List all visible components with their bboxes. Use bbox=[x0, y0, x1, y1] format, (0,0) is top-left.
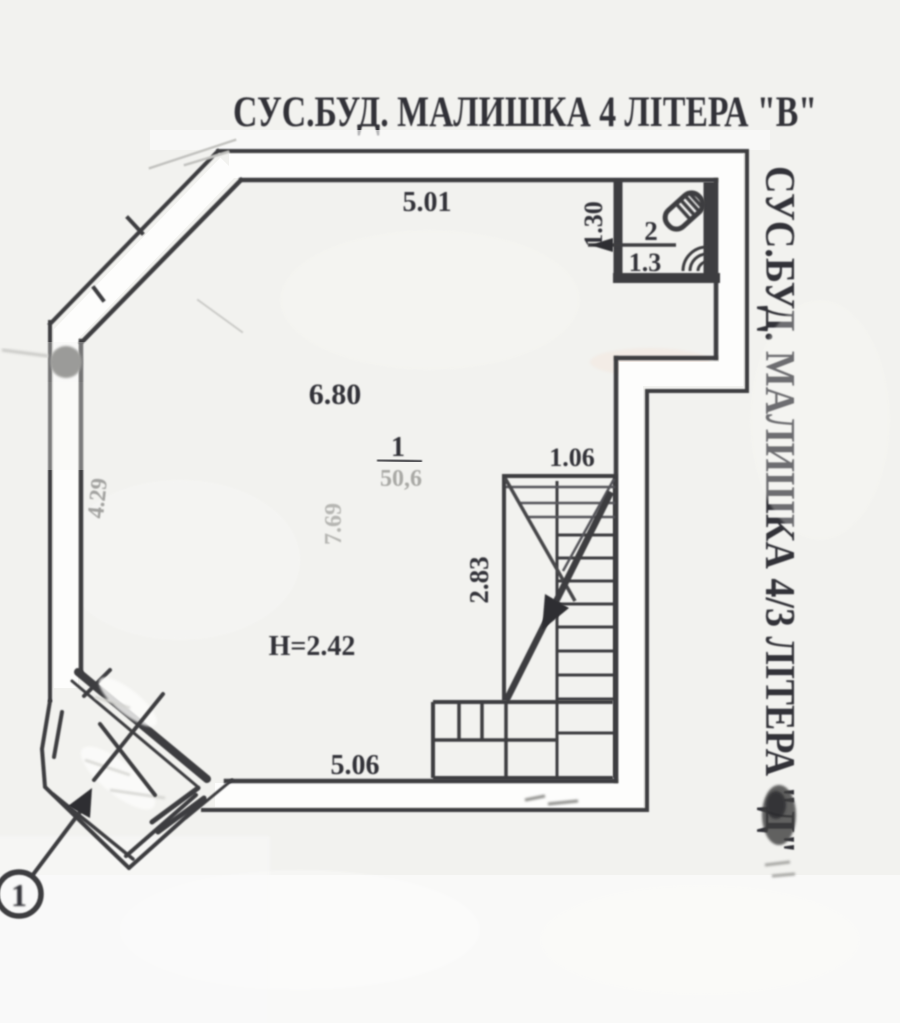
svg-text:50,6: 50,6 bbox=[380, 466, 422, 492]
svg-text:СУС.БУД. МАЛИШКА 4 ЛІТЕРА "В": СУС.БУД. МАЛИШКА 4 ЛІТЕРА "В" bbox=[233, 89, 817, 136]
svg-text:H=2.42: H=2.42 bbox=[269, 631, 356, 662]
svg-text:4.29: 4.29 bbox=[83, 477, 112, 520]
svg-text:1.3: 1.3 bbox=[629, 248, 662, 277]
svg-text:2: 2 bbox=[644, 216, 658, 246]
svg-text:1: 1 bbox=[391, 432, 405, 463]
svg-text:2.83: 2.83 bbox=[464, 556, 494, 603]
svg-text:5.06: 5.06 bbox=[331, 750, 380, 781]
svg-text:6.80: 6.80 bbox=[309, 378, 362, 411]
svg-text:1.06: 1.06 bbox=[549, 443, 595, 472]
svg-text:5.01: 5.01 bbox=[403, 187, 452, 218]
svg-text:1: 1 bbox=[11, 877, 27, 913]
svg-text:7.69: 7.69 bbox=[321, 503, 347, 545]
svg-text:1.30: 1.30 bbox=[579, 201, 608, 247]
